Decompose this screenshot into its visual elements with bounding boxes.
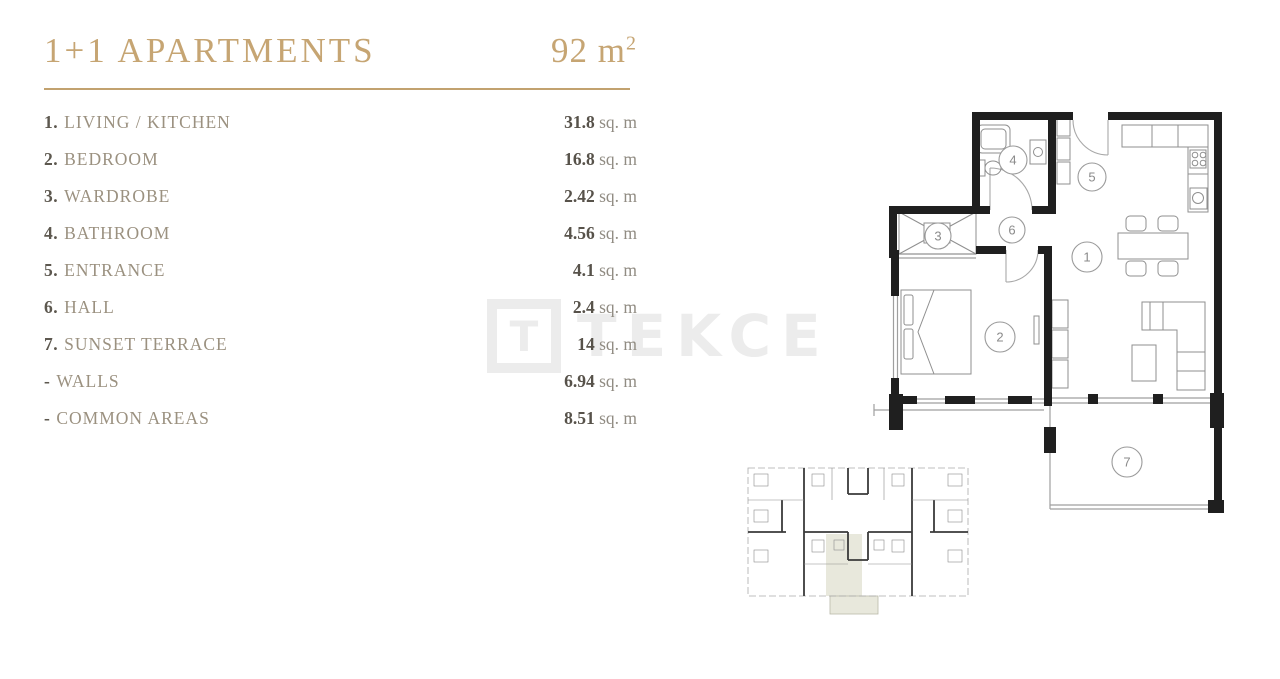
room-name: WALLS [56,371,119,391]
room-area-unit: sq. m [595,112,637,132]
shelf-icon [1057,138,1070,160]
room-area: 6.94 [564,371,595,391]
room-area-unit: sq. m [595,371,637,391]
chair-icon [1126,261,1146,276]
room-area: 2.42 [564,186,595,206]
cabinet-icon [1052,360,1068,388]
blanket-fold [918,290,934,374]
list-item: -COMMON AREAS8.51 sq. m [44,408,637,429]
total-area-value: 92 m [551,31,626,70]
room-badge-hall-label: 6 [1008,223,1015,238]
pillow-icon [904,329,913,359]
coffee-table-icon [1132,345,1156,381]
list-item: -WALLS6.94 sq. m [44,371,637,392]
room-number: 6. [44,297,58,317]
room-number: 4. [44,223,58,243]
room-number: 2. [44,149,58,169]
room-number: 1. [44,112,58,132]
building-overview-plan [742,460,974,618]
room-area-unit: sq. m [595,297,637,317]
room-badge-terrace-label: 7 [1123,455,1130,470]
room-name: WARDROBE [64,186,170,206]
washbasin-icon [1030,140,1046,164]
room-area: 4.1 [573,260,595,280]
room-name: HALL [64,297,115,317]
room-area-unit: sq. m [595,260,637,280]
room-area: 16.8 [564,149,595,169]
list-item: 6.HALL2.4 sq. m [44,297,637,318]
total-area: 92 m2 [551,28,637,74]
sofa-icon [1142,302,1205,390]
room-name: SUNSET TERRACE [64,334,228,354]
room-badge-wardrobe-label: 3 [934,229,941,244]
list-item: 2.BEDROOM16.8 sq. m [44,149,637,170]
kitchen-counter-icon [1122,125,1208,147]
total-area-sup: 2 [626,32,637,54]
room-area-unit: sq. m [595,408,637,428]
cabinet-icon [1052,300,1068,328]
room-name: BATHROOM [64,223,170,243]
washbasin-bowl [1034,148,1043,157]
room-number-badges: 1 2 3 4 5 6 7 [925,146,1142,477]
shelf-icon [1057,162,1070,184]
room-number: - [44,408,50,428]
page-title: 1+1 APARTMENTS [44,28,376,74]
bathtub-inner [981,129,1006,149]
gold-divider [44,88,630,90]
page: T TEKCE 1+1 APARTMENTS 92 m2 1.LIVING / … [0,0,1280,679]
cabinet-icon [1052,330,1068,358]
room-badge-bedroom-label: 2 [996,330,1003,345]
room-area-unit: sq. m [595,334,637,354]
list-item: 4.BATHROOM4.56 sq. m [44,223,637,244]
list-item: 5.ENTRANCE4.1 sq. m [44,260,637,281]
room-name: ENTRANCE [64,260,165,280]
room-badge-living-label: 1 [1083,250,1090,265]
dining-table-icon [1118,233,1188,259]
list-item: 1.LIVING / KITCHEN31.8 sq. m [44,112,637,133]
room-area: 14 [577,334,595,354]
room-number: - [44,371,50,391]
room-area-unit: sq. m [595,223,637,243]
room-area-unit: sq. m [595,186,637,206]
apartment-legend: 1+1 APARTMENTS 92 m2 1.LIVING / KITCHEN3… [44,28,637,74]
room-area: 4.56 [564,223,595,243]
room-area-unit: sq. m [595,149,637,169]
chair-icon [1158,261,1178,276]
room-number: 3. [44,186,58,206]
room-badge-bathroom-label: 4 [1009,153,1016,168]
highlighted-unit-terrace [830,596,878,614]
room-area: 31.8 [564,112,595,132]
list-item: 3.WARDROBE2.42 sq. m [44,186,637,207]
room-name: LIVING / KITCHEN [64,112,231,132]
room-name: COMMON AREAS [56,408,210,428]
pillow-icon [904,295,913,325]
room-area: 8.51 [564,408,595,428]
dresser-icon [1034,316,1039,344]
list-item: 7.SUNSET TERRACE14 sq. m [44,334,637,355]
bed-icon [901,290,971,374]
room-number: 7. [44,334,58,354]
chair-icon [1126,216,1146,231]
room-badge-entrance-label: 5 [1088,170,1095,185]
room-name: BEDROOM [64,149,159,169]
room-number: 5. [44,260,58,280]
room-area: 2.4 [573,297,595,317]
chair-icon [1158,216,1178,231]
